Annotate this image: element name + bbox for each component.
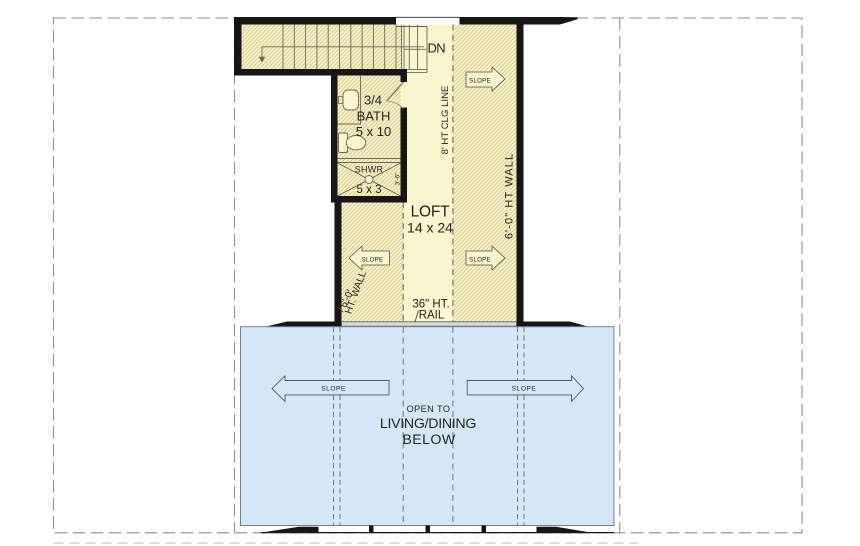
svg-text:DN: DN <box>428 41 446 56</box>
svg-text:SLOPE: SLOPE <box>512 386 537 393</box>
svg-text:RAIL: RAIL <box>419 310 445 322</box>
svg-text:BELOW: BELOW <box>402 432 455 448</box>
svg-text:3/4: 3/4 <box>364 93 382 108</box>
svg-text:8' HT CLG LINE: 8' HT CLG LINE <box>440 86 451 155</box>
svg-text:SLOPE: SLOPE <box>362 256 384 263</box>
svg-text:SHWR: SHWR <box>355 164 384 174</box>
svg-text:SLOPE: SLOPE <box>321 386 346 393</box>
svg-text:14 x 24: 14 x 24 <box>407 219 453 235</box>
svg-text:LOFT: LOFT <box>411 204 451 221</box>
svg-text:BATH: BATH <box>357 108 391 123</box>
svg-text:5 x 3: 5 x 3 <box>357 184 382 196</box>
svg-text:6'-0" HT WALL: 6'-0" HT WALL <box>504 153 516 239</box>
svg-text:OPEN TO: OPEN TO <box>407 404 451 414</box>
svg-text:LIVING/DINING: LIVING/DINING <box>380 416 476 432</box>
svg-text:SLOPE: SLOPE <box>469 256 491 263</box>
svg-text:SLOPE: SLOPE <box>469 77 491 84</box>
svg-text:3'-6": 3'-6" <box>395 172 402 186</box>
svg-text:5 x 10: 5 x 10 <box>356 124 391 139</box>
